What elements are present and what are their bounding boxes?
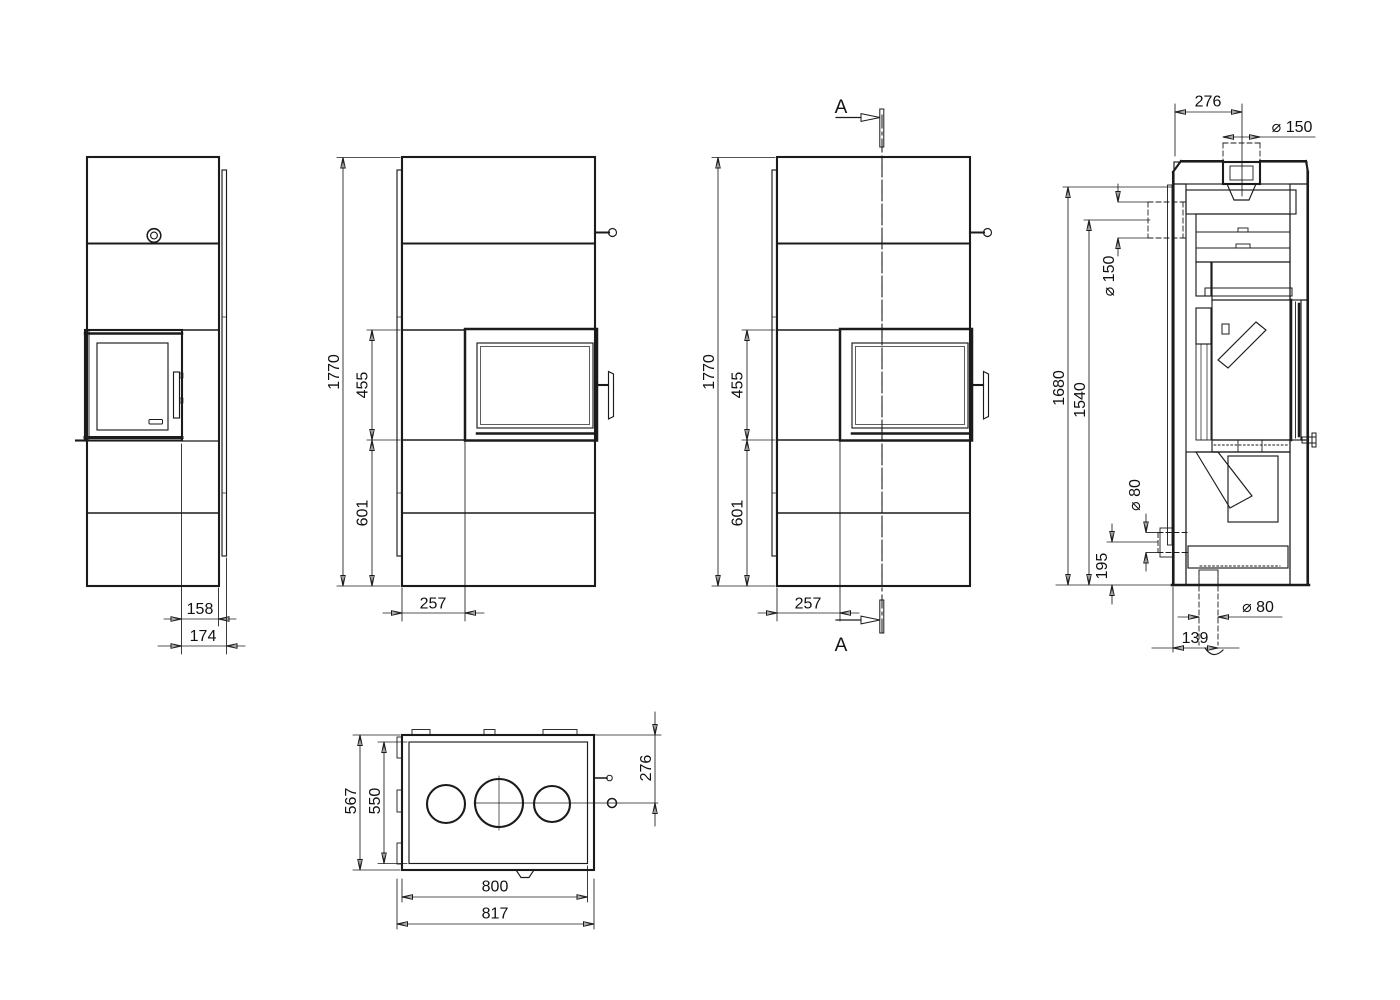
dim-label-257: 257 <box>420 596 447 613</box>
section-right-wall <box>1290 184 1307 300</box>
dim-label-bottom-80: ⌀ 80 <box>1242 599 1274 616</box>
dim-label-601-b: 601 <box>730 500 747 527</box>
side-fire-door <box>76 330 183 441</box>
dim-label-1680: 1680 <box>1051 370 1068 406</box>
dim-label-455: 455 <box>355 372 372 399</box>
dim-label-139: 139 <box>1182 630 1209 647</box>
section-label-bottom: A <box>835 635 848 656</box>
section-label-top: A <box>835 97 848 118</box>
dim-label-601: 601 <box>355 500 372 527</box>
dim-label-276-plan: 276 <box>638 755 655 782</box>
dim-front2-door-offset: 257 <box>758 441 859 621</box>
section-marker-top: A <box>835 97 884 147</box>
plan-view: 567 550 276 800 <box>343 712 661 929</box>
dim-label-800: 800 <box>482 879 509 896</box>
front-door-handle <box>609 372 614 420</box>
side-door-logo <box>149 420 163 425</box>
dim-label-rear-80: ⌀ 80 <box>1127 479 1144 511</box>
dim-side-depths: 158 174 <box>158 444 245 654</box>
side-door-handle <box>174 372 180 418</box>
section-ash-chamber <box>1228 456 1278 522</box>
dim-label-158: 158 <box>187 601 214 618</box>
section-flue-outlet-top-dashed <box>1223 143 1260 161</box>
dim-label-567: 567 <box>343 788 360 815</box>
dim-label-455-b: 455 <box>730 372 747 399</box>
section-left-wall <box>1174 184 1186 585</box>
front2-air-control-knob <box>970 229 992 237</box>
dim-section-air-bottom: ⌀ 80 139 <box>1152 587 1282 652</box>
cross-section-view: 276 ⌀ 150 1680 1540 <box>1051 94 1316 655</box>
front-view: 1770 455 601 257 <box>326 157 617 621</box>
plan-ring-left <box>427 785 465 823</box>
dim-label-276: 276 <box>1195 94 1222 111</box>
dim-label-257-b: 257 <box>795 596 822 613</box>
front2-door-handle <box>984 372 989 420</box>
dim-label-1540: 1540 <box>1072 382 1089 418</box>
front-fire-door <box>465 329 614 441</box>
section-firebox <box>1196 262 1316 452</box>
dim-front-door-offset: 257 <box>383 441 484 621</box>
side-door-glass <box>97 343 168 430</box>
technical-drawing-page: 158 174 <box>0 0 1400 1000</box>
plan-knob-upper <box>594 775 612 781</box>
plan-door-handle-tab <box>516 870 534 878</box>
dim-label-rear-150: ⌀ 150 <box>1101 256 1118 297</box>
dim-plan-rear-to-axis: 276 <box>594 712 661 826</box>
dim-label-817: 817 <box>482 906 509 923</box>
section-base <box>1186 452 1290 585</box>
dim-label-174: 174 <box>190 628 217 645</box>
dim-label-550: 550 <box>367 788 384 815</box>
side-air-control-knob <box>147 229 161 243</box>
side-rear-tile-strip <box>222 170 227 556</box>
plan-ring-right <box>534 786 570 822</box>
section-marker-bottom: A <box>835 600 884 656</box>
front-air-control-knob <box>595 229 617 237</box>
dim-label-1770: 1770 <box>326 354 343 390</box>
side-view: 158 174 <box>76 157 245 654</box>
front-view-section-marked: A A 1770 455 <box>701 97 992 656</box>
dim-section-flue-top: ⌀ 150 <box>1223 119 1315 139</box>
section-flue-collar <box>1223 162 1260 200</box>
dim-label-195: 195 <box>1094 553 1111 580</box>
dim-label-1770-b: 1770 <box>701 354 718 390</box>
dim-section-top-depth: 276 <box>1175 94 1242 197</box>
dim-front2-door-heights: 455 601 <box>730 330 776 586</box>
dim-plan-widths: 800 817 <box>397 866 594 929</box>
dim-front-door-heights: 455 601 <box>355 330 401 586</box>
section-deflector <box>1218 322 1266 368</box>
front-side-tile-strip <box>397 170 402 556</box>
dim-section-heights: 1680 1540 <box>1051 187 1172 585</box>
section-upper-chamber <box>1196 214 1290 262</box>
section-baffle <box>1205 288 1292 296</box>
dim-section-flue-rear: ⌀ 150 <box>1101 184 1150 296</box>
front-door-glass <box>477 343 593 428</box>
front2-fire-door <box>840 329 989 441</box>
dim-label-flue-150: ⌀ 150 <box>1272 119 1313 136</box>
